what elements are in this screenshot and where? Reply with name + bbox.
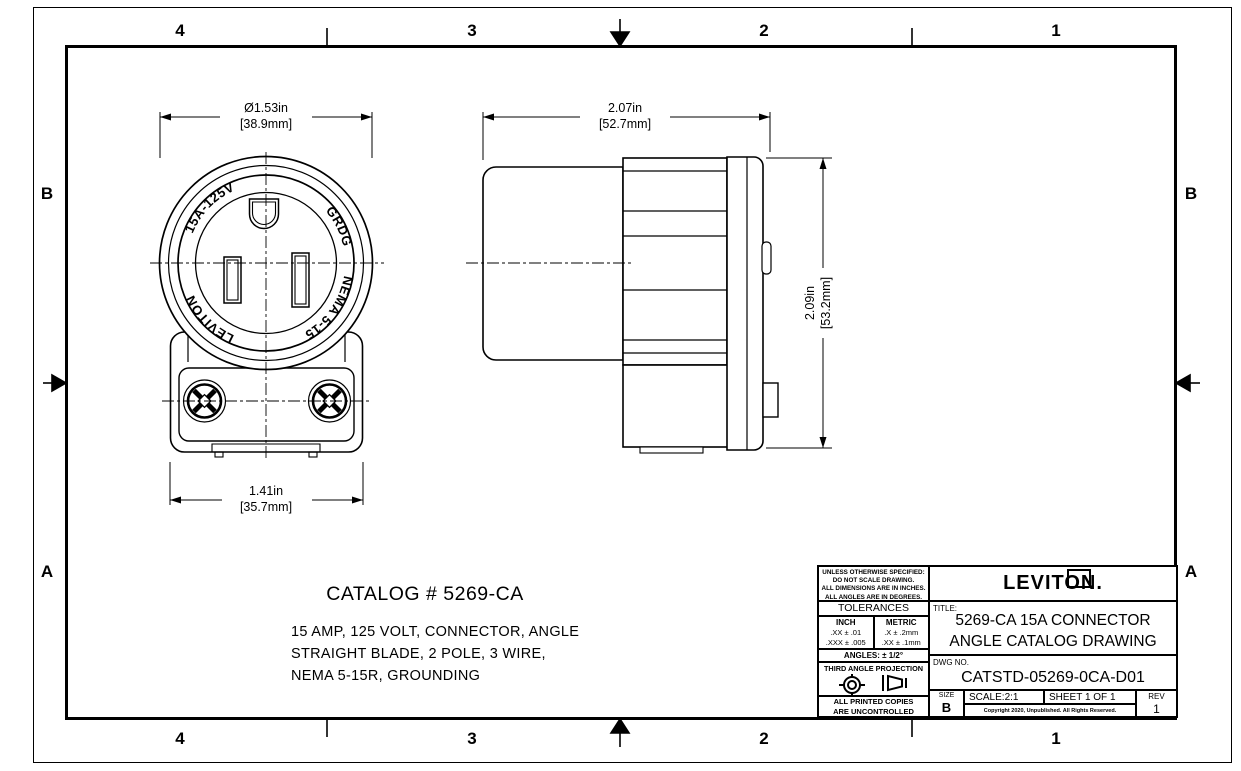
metric-header: METRIC <box>886 618 917 627</box>
note-line: UNLESS OTHERWISE SPECIFIED: <box>819 569 928 577</box>
side-lower-tab <box>763 383 778 417</box>
title-block: UNLESS OTHERWISE SPECIFIED: DO NOT SCALE… <box>817 565 1178 718</box>
dim-height-mm: [53.2mm] <box>819 277 833 329</box>
dim-diameter-mm: [38.9mm] <box>240 117 292 131</box>
dim-length-in: 2.07in <box>608 101 642 115</box>
brand-logo: LEVITON. <box>930 567 1176 602</box>
drawing-title-line: ANGLE CATALOG DRAWING <box>930 632 1176 653</box>
neutral-slot <box>224 257 241 303</box>
rev-label: REV <box>1137 692 1176 701</box>
copyright-notice: Copyright 2020, Unpublished. All Rights … <box>965 705 1135 716</box>
inch-tolerance: .XXX ± .005 <box>819 638 873 648</box>
side-cylinder-body <box>483 167 623 360</box>
dwg-no-label: DWG NO. <box>933 658 969 667</box>
title-block-bottom-row: SIZE B SCALE:2:1 SHEET 1 OF 1 Copyright … <box>930 691 1176 716</box>
inch-tolerance: .XX ± .01 <box>819 628 873 638</box>
leviton-logo-text: LEVITON. <box>1003 572 1103 595</box>
general-notes: UNLESS OTHERWISE SPECIFIED: DO NOT SCALE… <box>819 567 928 602</box>
center-arrow-top-icon <box>611 32 629 46</box>
angles-tolerance: ANGLES: ± 1/2° <box>819 650 928 664</box>
catalog-description-line: NEMA 5-15R, GROUNDING <box>291 665 579 687</box>
title-label: TITLE: <box>933 604 957 613</box>
note-line: DO NOT SCALE DRAWING. <box>819 577 928 585</box>
side-view: 2.07in [52.7mm] 2.09in [53.2mm] <box>466 101 833 453</box>
size-cell: SIZE B <box>930 691 965 716</box>
center-arrow-right-icon <box>1176 375 1190 391</box>
size-label: SIZE <box>930 692 963 699</box>
catalog-description-line: STRAIGHT BLADE, 2 POLE, 3 WIRE, <box>291 643 579 665</box>
catalog-description-line: 15 AMP, 125 VOLT, CONNECTOR, ANGLE <box>291 621 579 643</box>
projection-label: THIRD ANGLE PROJECTION <box>819 664 928 673</box>
tolerance-inch-column: INCH .XX ± .01 .XXX ± .005 <box>819 617 875 648</box>
tolerances-table: INCH .XX ± .01 .XXX ± .005 METRIC .X ± .… <box>819 617 928 650</box>
scale-sheet-cell: SCALE:2:1 SHEET 1 OF 1 Copyright 2020, U… <box>965 691 1135 716</box>
drawing-number-cell: DWG NO. CATSTD-05269-0CA-D01 <box>930 656 1176 691</box>
side-latch-bump <box>762 242 771 274</box>
drawing-sheet: 4 3 2 1 4 3 2 1 B A B A <box>0 0 1241 771</box>
projection-front-symbol-icon <box>839 674 865 696</box>
title-block-right-column: LEVITON. TITLE: 5269-CA 15A CONNECTOR AN… <box>930 567 1176 716</box>
drawing-title-line: 5269-CA 15A CONNECTOR <box>930 611 1176 632</box>
scale-value: SCALE:2:1 <box>965 691 1045 703</box>
dim-length-mm: [52.7mm] <box>599 117 651 131</box>
catalog-description: 15 AMP, 125 VOLT, CONNECTOR, ANGLE STRAI… <box>291 621 579 687</box>
tolerances-header: TOLERANCES <box>819 602 928 617</box>
projection-cell: THIRD ANGLE PROJECTION <box>819 663 928 697</box>
metric-tolerance: .X ± .2mm <box>875 628 929 638</box>
drawing-title-cell: TITLE: 5269-CA 15A CONNECTOR ANGLE CATAL… <box>930 602 1176 657</box>
side-face-plate <box>727 157 763 450</box>
metric-tolerance: .XX ± .1mm <box>875 638 929 648</box>
dim-width-mm: [35.7mm] <box>240 500 292 514</box>
center-arrow-left-icon <box>52 375 66 391</box>
dim-diameter-in: Ø1.53in <box>244 101 288 115</box>
hot-slot <box>292 253 309 307</box>
center-arrow-bottom-icon <box>611 719 629 733</box>
sheet-count: SHEET 1 OF 1 <box>1045 691 1135 703</box>
ground-slot <box>250 199 279 229</box>
catalog-number: CATALOG # 5269-CA <box>280 583 570 606</box>
uncontrolled-line: ALL PRINTED COPIES <box>819 697 928 706</box>
rev-cell: REV 1 <box>1135 691 1176 716</box>
dim-width-in: 1.41in <box>249 484 283 498</box>
uncontrolled-note: ALL PRINTED COPIES ARE UNCONTROLLED <box>819 697 928 716</box>
inch-header: INCH <box>836 618 856 627</box>
dim-height-in: 2.09in <box>803 286 817 320</box>
front-view: 15A-125V GRDG NEMA 5-15 LEVITON <box>150 101 384 514</box>
uncontrolled-line: ARE UNCONTROLLED <box>819 707 928 716</box>
size-value: B <box>930 700 963 715</box>
side-ribbed-grip <box>623 158 727 365</box>
rev-value: 1 <box>1137 702 1176 716</box>
title-block-left-column: UNLESS OTHERWISE SPECIFIED: DO NOT SCALE… <box>819 567 930 716</box>
projection-side-symbol-icon <box>879 674 909 692</box>
tolerance-metric-column: METRIC .X ± .2mm .XX ± .1mm <box>875 617 929 648</box>
note-line: ALL DIMENSIONS ARE IN INCHES. <box>819 585 928 593</box>
note-line: ALL ANGLES ARE IN DEGREES. <box>819 594 928 602</box>
side-foot <box>640 447 703 453</box>
